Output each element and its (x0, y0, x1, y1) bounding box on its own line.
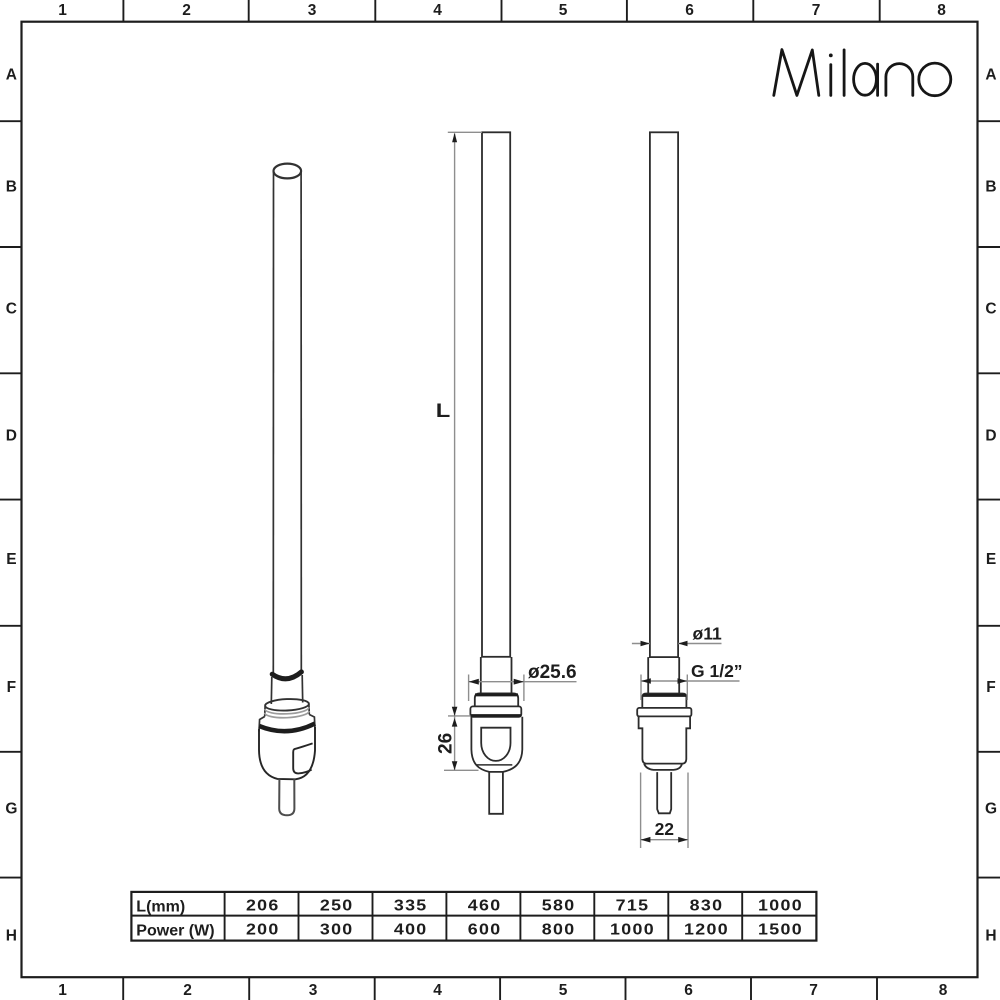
svg-text:E: E (6, 551, 16, 568)
svg-text:580: 580 (542, 897, 576, 915)
svg-text:4: 4 (433, 982, 442, 999)
svg-text:7: 7 (809, 982, 818, 999)
svg-text:E: E (986, 551, 996, 568)
svg-text:200: 200 (246, 921, 280, 939)
svg-text:D: D (6, 427, 17, 444)
svg-text:2: 2 (183, 982, 192, 999)
svg-text:8: 8 (939, 982, 948, 999)
svg-text:A: A (6, 67, 17, 84)
svg-text:G: G (5, 801, 17, 818)
svg-text:22: 22 (655, 819, 675, 839)
svg-text:3: 3 (308, 2, 317, 19)
svg-text:G: G (985, 801, 997, 818)
svg-text:4: 4 (433, 2, 442, 19)
svg-text:5: 5 (559, 982, 568, 999)
svg-text:8: 8 (937, 2, 946, 19)
svg-text:335: 335 (394, 897, 428, 915)
svg-text:800: 800 (542, 921, 576, 939)
svg-text:1500: 1500 (758, 921, 803, 939)
svg-text:G 1/2”: G 1/2” (691, 661, 743, 681)
svg-text:F: F (7, 679, 16, 696)
svg-text:2: 2 (182, 2, 191, 19)
svg-text:6: 6 (685, 2, 694, 19)
svg-text:460: 460 (468, 897, 502, 915)
svg-text:1000: 1000 (610, 921, 655, 939)
svg-text:1: 1 (58, 982, 67, 999)
svg-text:L: L (436, 400, 451, 421)
svg-text:5: 5 (559, 2, 568, 19)
svg-text:300: 300 (320, 921, 354, 939)
svg-text:26: 26 (436, 733, 457, 754)
svg-text:400: 400 (394, 921, 428, 939)
svg-text:B: B (985, 178, 996, 195)
svg-text:250: 250 (320, 897, 354, 915)
svg-text:ø11: ø11 (693, 623, 722, 643)
svg-text:715: 715 (616, 897, 650, 915)
svg-text:6: 6 (684, 982, 693, 999)
svg-text:H: H (985, 928, 996, 945)
svg-text:Power (W): Power (W) (136, 922, 214, 939)
svg-text:600: 600 (468, 921, 502, 939)
svg-text:830: 830 (690, 897, 724, 915)
svg-text:ø25.6: ø25.6 (528, 662, 577, 683)
svg-text:7: 7 (812, 2, 821, 19)
svg-text:1: 1 (58, 2, 67, 19)
svg-text:L(mm): L(mm) (136, 899, 185, 916)
svg-text:C: C (985, 301, 996, 318)
svg-text:B: B (6, 178, 17, 195)
svg-text:3: 3 (309, 982, 318, 999)
svg-text:H: H (6, 928, 17, 945)
svg-text:D: D (985, 427, 996, 444)
svg-text:C: C (6, 301, 17, 318)
svg-text:1000: 1000 (758, 897, 803, 915)
svg-text:F: F (986, 679, 995, 696)
svg-text:206: 206 (246, 897, 280, 915)
svg-text:A: A (985, 67, 996, 84)
svg-text:1200: 1200 (684, 921, 729, 939)
